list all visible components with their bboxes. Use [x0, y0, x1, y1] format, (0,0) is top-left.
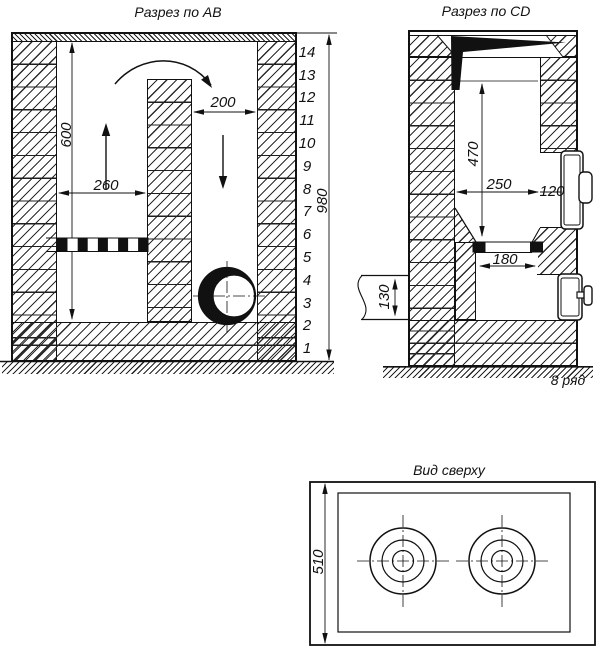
dim-470: 470: [465, 134, 481, 174]
ab-middle-column: [147, 79, 192, 322]
dim-260: 260: [86, 178, 126, 192]
dim-120: 120: [532, 184, 572, 198]
row-note: 8 ряд: [533, 372, 600, 387]
ab-left-wall: [12, 41, 57, 361]
row-number-6: 6: [294, 223, 320, 246]
dim-600: 600: [58, 115, 74, 155]
row-number-10: 10: [294, 132, 320, 155]
dim-250: 250: [479, 177, 519, 191]
row-number-8: 8: [294, 178, 320, 201]
ab-base: [12, 322, 296, 361]
burner-left: [357, 515, 449, 607]
cd-right-mid-block: [530, 227, 577, 275]
cd-base: [409, 320, 577, 366]
dim-510: 510: [310, 542, 326, 582]
cd-right-wall-upper: [540, 57, 577, 153]
fire-door-handle: [579, 172, 592, 203]
section-ab-title: Разрез по АВ: [93, 4, 263, 20]
row-number-11: 11: [294, 109, 320, 132]
row-number-7: 7: [294, 201, 320, 224]
burner-right: [456, 515, 548, 607]
row-number-12: 12: [294, 87, 320, 110]
row-number-14: 14: [294, 41, 320, 64]
cd-ashpit-left-strip: [455, 242, 476, 320]
cd-top-right-band: [546, 35, 577, 57]
cd-ash-door: [558, 274, 592, 320]
dim-200: 200: [203, 95, 243, 109]
row-number-9: 9: [294, 155, 320, 178]
ab-grate: [46, 238, 148, 252]
cd-top-left-band: [409, 35, 456, 57]
row-number-1: 1: [294, 337, 320, 360]
ab-ground-hatch: [2, 362, 334, 374]
row-number-4: 4: [294, 269, 320, 292]
section-cd-title: Разрез по CD: [401, 3, 571, 19]
row-number-13: 13: [294, 64, 320, 87]
row-number-2: 2: [294, 315, 320, 338]
stove-drawing: Разрез по АВ Разрез по CD Вид сверху 600…: [0, 0, 600, 649]
dim-180: 180: [485, 252, 525, 266]
top-view-geometry: [310, 482, 595, 645]
ab-right-wall: [257, 41, 296, 361]
row-number-3: 3: [294, 292, 320, 315]
cd-hearth-slope-left: [455, 208, 476, 242]
top-view-title: Вид сверху: [364, 462, 534, 478]
ash-door-knob: [584, 286, 592, 305]
dim-130: 130: [376, 277, 392, 317]
row-number-5: 5: [294, 246, 320, 269]
